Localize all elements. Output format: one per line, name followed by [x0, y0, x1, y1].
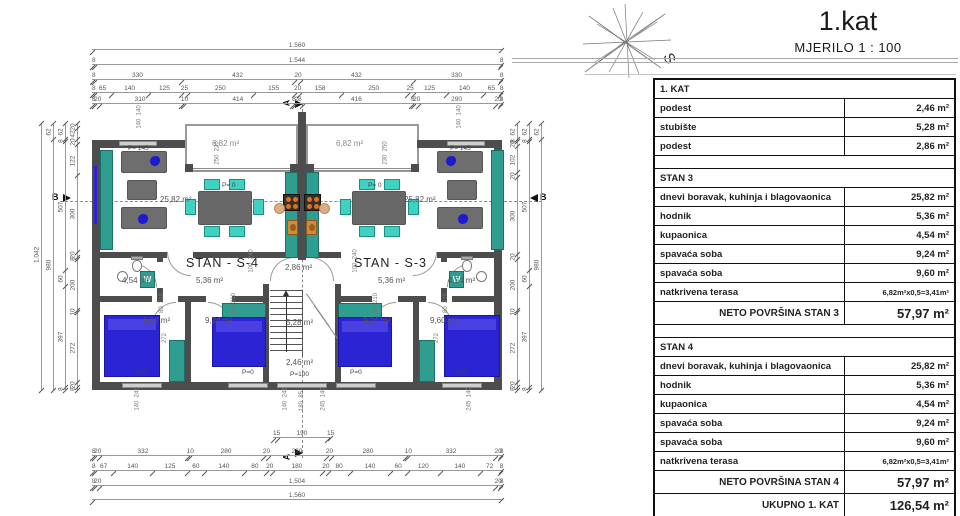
area-value: 5,36 m² [844, 207, 954, 225]
dim-value: 155 [253, 85, 294, 92]
wall [263, 252, 269, 258]
dim-value: 8 [500, 57, 502, 64]
floor-plan: W W 6,82 m² 6,82 m² 25,82 m² 25,82 m² 2,… [0, 0, 610, 516]
dim-value: 140 [440, 463, 479, 470]
dim-segment: 8 [500, 476, 502, 488]
terrace-left [185, 124, 298, 172]
dim-segment: 190 [277, 428, 327, 440]
dim-segment: 310 [99, 94, 180, 106]
dim-label: 140 245 [283, 387, 289, 410]
chair [204, 226, 220, 237]
table-row: spavaća soba9,60 m² [655, 264, 954, 283]
dim-chain: 628507603978 [520, 124, 532, 390]
page-title: 1.kat [740, 6, 956, 37]
dim-segment: 8 [500, 446, 502, 458]
dim-segment: 414 [183, 94, 292, 106]
wall [185, 164, 193, 172]
window [442, 383, 482, 388]
table-row: podest2,46 m² [655, 99, 954, 118]
dim-value: 414 [183, 96, 292, 103]
dim-label: 272 [434, 333, 440, 343]
sofa [121, 151, 167, 173]
dining-table [198, 191, 252, 225]
wall [411, 164, 419, 172]
room-area-label: 2,46 m² [286, 358, 313, 367]
area-value: 6,82m²x0,5=3,41m² [844, 283, 954, 301]
dim-value: 1.042 [34, 251, 41, 263]
dim-value: 432 [300, 72, 414, 79]
dim-segment: 72 [480, 461, 500, 473]
dim-segment: 280 [331, 446, 405, 458]
area-table: 1. KATpodest2,46 m²stubište5,28 m²podest… [653, 78, 956, 516]
parapet-label: P=0 [350, 369, 362, 376]
area-value: 2,46 m² [844, 99, 954, 117]
dim-value: 8 [70, 383, 77, 395]
area-value: 9,60 m² [844, 264, 954, 282]
room-area-label: 4,54 m² [448, 276, 475, 285]
dim-value: 300 [510, 210, 517, 222]
stair-arrow-icon [283, 290, 289, 296]
dim-value: 1.544 [94, 57, 500, 64]
room-label: kupaonica [655, 395, 844, 413]
dim-value: 397 [58, 331, 65, 343]
titleblock-rule [512, 62, 958, 63]
room-label: natkrivena terasa [655, 452, 844, 470]
room-label: kupaonica [655, 226, 844, 244]
dim-segment: 332 [407, 446, 494, 458]
dim-segment: 397 [56, 287, 68, 388]
dim-chain: 1519015 [273, 428, 331, 440]
dim-label: 140 140 [457, 105, 463, 128]
dim-segment: 980 [532, 140, 544, 390]
dim-value: 8 [500, 448, 502, 455]
dim-label: 250 230 [215, 141, 221, 164]
chair [359, 226, 375, 237]
dim-value: 397 [522, 331, 529, 343]
dim-value: 432 [181, 72, 295, 79]
dim-segment: 1.560 [92, 40, 502, 52]
dim-label: 100 240 [249, 249, 255, 272]
dim-value: 8 [522, 383, 529, 395]
room-label: STAN 4 [655, 338, 954, 356]
dim-value: 290 [418, 96, 494, 103]
dim-label: 230 250 [383, 141, 389, 164]
room-area-label: 5,28 m² [286, 318, 313, 327]
room-area-label: 25,82 m² [404, 195, 436, 204]
area-value: 25,82 m² [844, 357, 954, 375]
wall [100, 296, 152, 302]
room-area-label: 5,36 m² [378, 276, 405, 285]
table-row: hodnik5,36 m² [655, 376, 954, 395]
room-area-label: 9,60 m² [430, 316, 457, 325]
room-area-label: 9,24 m² [205, 316, 232, 325]
wall [335, 252, 341, 258]
parapet-label: P=0 [136, 369, 148, 376]
dim-value: 416 [302, 96, 411, 103]
dim-segment: 1.560 [92, 490, 502, 502]
dim-segment: 80 [328, 461, 350, 473]
table-row [655, 325, 954, 338]
parapet-label: P=100 [290, 371, 309, 378]
table-row: dnevi boravak, kuhinja i blagovaonica25,… [655, 357, 954, 376]
dim-value: 140 [204, 463, 243, 470]
dim-label: 272 [162, 333, 168, 343]
dim-segment: 300 [68, 176, 80, 253]
area-value: 9,24 m² [844, 245, 954, 263]
wall [441, 252, 447, 262]
dim-value: 25 [181, 85, 188, 92]
dim-segment: 8 [520, 388, 532, 390]
dim-value: 180 [272, 463, 323, 470]
dim-segment: 140 [113, 461, 152, 473]
window [336, 383, 376, 388]
titleblock-rule [585, 74, 956, 75]
dim-segment: 416 [302, 94, 411, 106]
dim-segment: 507 [520, 142, 532, 271]
dim-value: 125 [152, 463, 187, 470]
wardrobe [169, 340, 185, 382]
dim-value: 62 [534, 126, 541, 138]
dim-value: 8 [500, 463, 502, 470]
room-area-label: 2,86 m² [285, 263, 312, 272]
dim-value: 250 [341, 85, 407, 92]
area-value: 126,54 m² [844, 494, 954, 516]
dim-value: 1.560 [92, 492, 502, 499]
bathroom-sink [476, 271, 487, 282]
dim-segment: 8 [500, 94, 502, 106]
dim-segment: 67 [94, 461, 113, 473]
room-area-label: 4,54 m² [122, 276, 149, 285]
dim-value: 8 [500, 72, 502, 79]
dim-chain: 81.5448 [92, 55, 502, 67]
dim-value: 28 [294, 96, 301, 103]
area-value: 5,28 m² [844, 118, 954, 136]
room-label: NETO POVRŠINA STAN 3 [655, 302, 844, 324]
table-row: STAN 4 [655, 338, 954, 357]
dim-segment: 8 [508, 388, 520, 390]
chair [384, 179, 400, 190]
terrace-door-right [314, 168, 411, 171]
dim-value: 60 [58, 273, 65, 285]
room-area-label: 9,60 m² [143, 316, 170, 325]
dim-value: 200 [510, 279, 517, 291]
dim-value: 507 [58, 201, 65, 213]
parapet-label: P=0 [242, 369, 254, 376]
dim-segment: 980 [44, 140, 56, 390]
dim-chain: 867140125601408020180208014060120140728 [92, 461, 502, 473]
dim-segment: 280 [189, 446, 263, 458]
table-row: podest2,86 m² [655, 137, 954, 156]
window-glass [94, 166, 97, 224]
dim-segment: 432 [181, 70, 295, 82]
table-row: dnevi boravak, kuhinja i blagovaonica25,… [655, 188, 954, 207]
wall [290, 164, 298, 172]
coffee-table [447, 180, 477, 200]
dim-chain: 82033210280202202028010332208 [92, 446, 502, 458]
table-row: kupaonica4,54 m² [655, 226, 954, 245]
terrace-right [306, 124, 419, 172]
area-value: 6,82m²x0,5=3,41m² [844, 452, 954, 470]
dim-segment: 272 [68, 313, 80, 382]
kitchen-counter [306, 172, 319, 258]
dim-chain: 62980 [44, 124, 56, 390]
dim-value: 125 [148, 85, 181, 92]
dim-value: 250 [187, 85, 253, 92]
room-area-label: 9,24 m² [363, 316, 390, 325]
parapet-label: P= 0 [368, 182, 382, 189]
table-row: kupaonica4,54 m² [655, 395, 954, 414]
wall [452, 296, 502, 302]
wall [263, 252, 341, 258]
dim-value: 310 [99, 96, 180, 103]
room-label: hodnik [655, 376, 844, 394]
coffee-table [127, 180, 157, 200]
dim-segment: 397 [520, 287, 532, 388]
wall [178, 296, 206, 302]
dim-segment: 8 [56, 388, 68, 390]
dim-value: 272 [70, 342, 77, 354]
dim-label: 245 140 [467, 387, 473, 410]
chair [204, 179, 220, 190]
dim-segment: 8 [500, 55, 502, 67]
dim-segment: 200 [68, 260, 80, 311]
dim-segment: 332 [99, 446, 186, 458]
room-label: spavaća soba [655, 433, 844, 451]
dim-chain: 1.560 [92, 40, 502, 52]
dim-segment: 140 [440, 461, 479, 473]
dim-value: 65 [483, 85, 500, 92]
terrace-door-left [193, 168, 290, 171]
dim-segment: 1.544 [94, 55, 500, 67]
room-label: STAN 3 [655, 169, 954, 187]
wardrobe [419, 340, 435, 382]
dim-label: 140 245 [135, 387, 141, 410]
area-value: 4,54 m² [844, 226, 954, 244]
dim-value: 280 [189, 448, 263, 455]
room-area-label: 6,82 m² [336, 139, 363, 148]
dim-value: 120 [407, 463, 441, 470]
dim-chain: 1.560 [92, 490, 502, 502]
dim-value: 280 [331, 448, 405, 455]
dim-value: 67 [94, 463, 113, 470]
scale-label: MJERILO 1 : 100 [740, 40, 956, 55]
wall [157, 252, 163, 262]
parapet-label: P=0 [456, 369, 468, 376]
dim-value: 330 [94, 72, 181, 79]
room-area-label: 5,36 m² [196, 276, 223, 285]
dim-segment: 140 [350, 461, 389, 473]
table-row: spavaća soba9,24 m² [655, 245, 954, 264]
chair [340, 199, 351, 215]
wall [298, 112, 306, 260]
dim-value: 332 [99, 448, 186, 455]
dim-segment: 1.042 [32, 124, 44, 390]
table-row: hodnik5,36 m² [655, 207, 954, 226]
window [228, 383, 268, 388]
compass-rose-icon [583, 2, 693, 82]
dim-segment: 290 [418, 94, 494, 106]
dim-value: 1.560 [92, 42, 502, 49]
area-value: 9,24 m² [844, 414, 954, 432]
room-label: natkrivena terasa [655, 283, 844, 301]
room-label: hodnik [655, 207, 844, 225]
kitchen-counter [285, 172, 298, 258]
dim-label: 100 240 [353, 249, 359, 272]
room-label: podest [655, 137, 844, 155]
sofa [437, 151, 483, 173]
stove [283, 194, 300, 211]
dim-value: 200 [70, 279, 77, 291]
table-row: STAN 3 [655, 169, 954, 188]
table-row: stubište5,28 m² [655, 118, 954, 137]
table-row: UKUPNO 1. KAT126,54 m² [655, 494, 954, 516]
drawing-sheet: W W 6,82 m² 6,82 m² 25,82 m² 25,82 m² 2,… [0, 0, 960, 516]
dim-value: 80 [244, 463, 266, 470]
dim-segment: 272 [508, 313, 520, 382]
person-figure [319, 203, 330, 214]
room-label: dnevi boravak, kuhinja i blagovaonica [655, 357, 844, 375]
dim-value: 220 [268, 448, 326, 455]
table-row: spavaća soba9,24 m² [655, 414, 954, 433]
dim-value: 980 [534, 259, 541, 271]
area-value: 57,97 m² [844, 471, 954, 493]
dim-value: 140 [446, 85, 483, 92]
dim-segment: 330 [94, 70, 181, 82]
dim-value: 8 [510, 383, 517, 395]
dim-chain: 20422012230020820010272208 [68, 124, 80, 390]
dim-segment: 80 [244, 461, 266, 473]
dim-value: 140 [350, 463, 389, 470]
unit-label-s3: STAN - S-3 [354, 256, 427, 270]
room-label: podest [655, 99, 844, 117]
dim-value: 140 [111, 85, 148, 92]
dim-segment: 28 [294, 94, 301, 106]
door-arc [310, 257, 334, 281]
dim-value: 140 [113, 463, 152, 470]
area-value: 9,60 m² [844, 433, 954, 451]
dim-chain: 62980 [532, 124, 544, 390]
dim-value: 102 [510, 154, 517, 166]
person-figure [274, 203, 285, 214]
dim-value: 62 [46, 126, 53, 138]
dim-chain: 8201.504208 [92, 476, 502, 488]
table-row: natkrivena terasa6,82m²x0,5=3,41m² [655, 283, 954, 302]
dim-segment: 8 [68, 388, 80, 390]
dim-segment: 220 [268, 446, 326, 458]
dim-chain: 628507603978 [56, 124, 68, 390]
dim-segment: 8 [500, 461, 502, 473]
kitchen-counter [100, 150, 113, 250]
chair [229, 226, 245, 237]
dim-label: 245 140 [321, 387, 327, 410]
dim-chain: 1.042 [32, 124, 44, 390]
dim-label: 180 85 [299, 391, 305, 411]
kitchen-sink [287, 220, 298, 235]
window [122, 383, 162, 388]
dim-value: 300 [70, 208, 77, 220]
dim-segment: 180 [272, 461, 323, 473]
dim-value: 272 [510, 342, 517, 354]
dim-value: 330 [413, 72, 500, 79]
dim-value: 125 [413, 85, 446, 92]
dim-segment: 60 [390, 461, 407, 473]
room-label: dnevi boravak, kuhinja i blagovaonica [655, 188, 844, 206]
room-label: spavaća soba [655, 264, 844, 282]
dim-label: 80 210 [373, 293, 379, 313]
dim-value: 8 [58, 383, 65, 395]
area-value: 2,86 m² [844, 137, 954, 155]
dim-value: 332 [407, 448, 494, 455]
dim-value: 60 [522, 273, 529, 285]
dim-segment: 140 [204, 461, 243, 473]
dim-value: 25 [407, 85, 414, 92]
area-value: 5,36 m² [844, 376, 954, 394]
wall [185, 296, 191, 382]
dim-value: 60 [187, 463, 204, 470]
dim-label: 80 210 [443, 293, 449, 313]
table-row: NETO POVRŠINA STAN 357,97 m² [655, 302, 954, 325]
dim-segment: 1.504 [99, 476, 494, 488]
dim-label: 80 210 [231, 293, 237, 313]
kitchen-counter [491, 150, 504, 250]
dim-chain: 82031010414828416820290208 [92, 94, 502, 106]
dim-segment: 125 [152, 461, 187, 473]
table-row: NETO POVRŠINA STAN 457,97 m² [655, 471, 954, 494]
dim-label: 140 140 [137, 105, 143, 128]
room-label: NETO POVRŠINA STAN 4 [655, 471, 844, 493]
dim-segment: 122 [68, 145, 80, 176]
dim-segment: 200 [508, 260, 520, 311]
dining-table [352, 191, 406, 225]
dim-value: 72 [480, 463, 500, 470]
parapet-label: P= 145 [128, 145, 149, 152]
dim-value: 8 [500, 85, 502, 92]
room-label: spavaća soba [655, 245, 844, 263]
dim-value: 507 [522, 201, 529, 213]
dim-segment: 507 [56, 142, 68, 271]
dim-segment: 432 [300, 70, 414, 82]
kitchen-sink [306, 220, 317, 235]
dim-segment: 15 [327, 428, 331, 440]
room-label: UKUPNO 1. KAT [655, 494, 844, 516]
dim-segment: 300 [508, 178, 520, 255]
dim-value: 980 [46, 259, 53, 271]
wall [341, 296, 372, 302]
room-label: 1. KAT [655, 80, 954, 98]
table-row: natkrivena terasa6,82m²x0,5=3,41m² [655, 452, 954, 471]
dim-segment: 330 [413, 70, 500, 82]
area-value: 4,54 m² [844, 395, 954, 413]
dim-value: 80 [328, 463, 350, 470]
dim-value: 15 [327, 430, 331, 437]
chair [384, 226, 400, 237]
wall [306, 164, 314, 172]
table-row [655, 156, 954, 169]
dim-value: 8 [500, 96, 502, 103]
dim-chain: 8330432204323308 [92, 70, 502, 82]
dim-segment: 8 [500, 70, 502, 82]
room-label: spavaća soba [655, 414, 844, 432]
dim-value: 1.504 [99, 478, 494, 485]
dim-value: 158 [299, 85, 341, 92]
dim-value: 60 [390, 463, 407, 470]
dim-value: 65 [94, 85, 111, 92]
dim-label: 80 210 [159, 293, 165, 313]
table-row: 1. KAT [655, 80, 954, 99]
room-label: stubište [655, 118, 844, 136]
chair [253, 199, 264, 215]
parapet-label: P= 145 [450, 145, 471, 152]
